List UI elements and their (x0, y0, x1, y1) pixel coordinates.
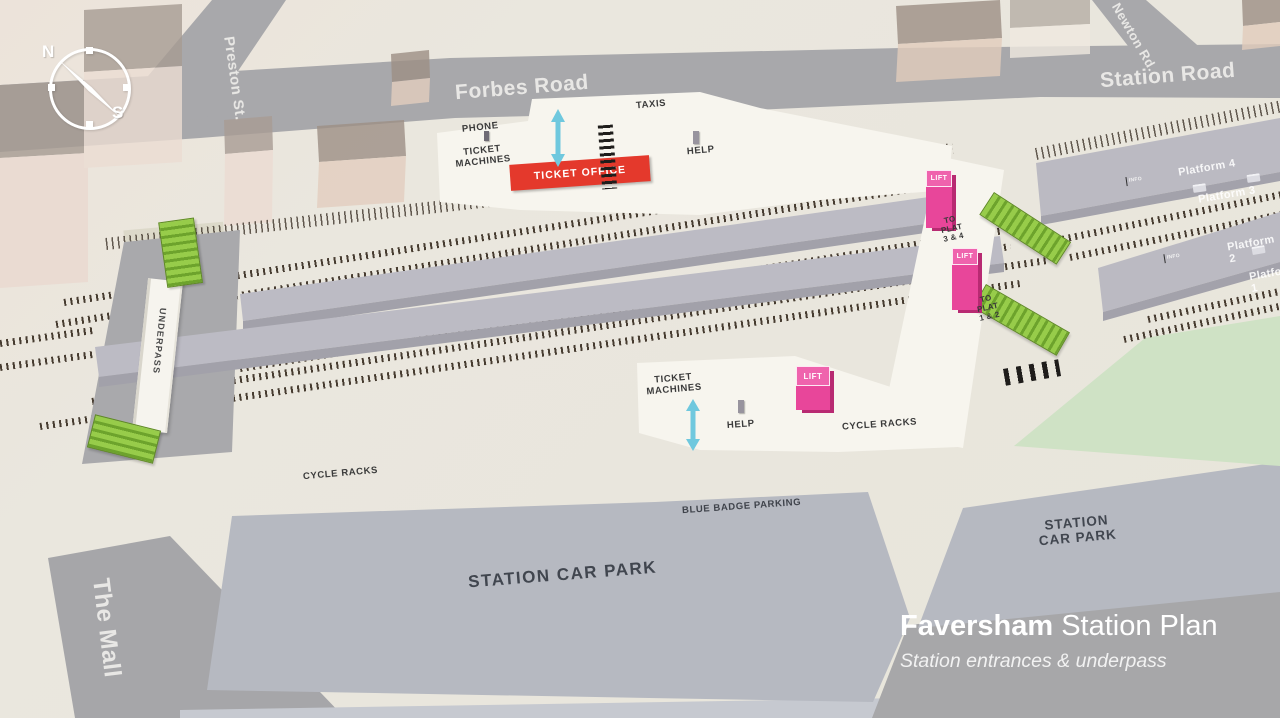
compass-south-label: S (112, 103, 123, 123)
ticket-machines-north-label: TICKET MACHINES (454, 143, 511, 171)
phone-label: PHONE (462, 121, 500, 136)
lift-tower: LIFT (952, 248, 978, 310)
ticket-machines-south-label: TICKET MACHINES (645, 372, 702, 399)
railway-track (0, 327, 96, 347)
underpass-label: UNDERPASS (145, 307, 168, 431)
road-label-newton: Newton Rd. (1109, 0, 1160, 74)
road-label-forbes: Forbes Road (454, 71, 589, 105)
info-sign-icon: INFO (1125, 175, 1142, 186)
page-title: Faversham Station Plan (900, 611, 1218, 643)
platform-1-label: Platform 1 (1248, 263, 1280, 295)
entrance-arrow-icon (550, 108, 566, 168)
platform-4-label: Platform 4 (1177, 157, 1236, 178)
lift-tower: LIFT (796, 366, 830, 410)
cycle-racks-south-label: CYCLE RACKS (842, 417, 918, 433)
railway-track (0, 351, 94, 371)
compass-tick (86, 47, 93, 54)
help-point-icon (693, 131, 699, 144)
road-label-station: Station Road (1099, 59, 1236, 94)
page-subtitle: Station entrances & underpass (900, 650, 1218, 673)
compass-tick (48, 84, 55, 91)
compass-north-label: N (42, 42, 54, 62)
right-car-park-label: STATION CAR PARK (1037, 512, 1118, 549)
help-north-label: HELP (687, 145, 716, 158)
entrance-arrow-icon (685, 398, 701, 452)
cycle-rack-icon (598, 125, 617, 190)
road-label-the-mall: The Mall (86, 577, 126, 680)
bench-icon (1247, 173, 1261, 183)
title-bold: Faversham (900, 610, 1053, 642)
to-platforms-3-4-label: TO PLAT 3 & 4 (938, 213, 965, 244)
bench-icon (1193, 183, 1207, 193)
cycle-rack-icon (1003, 359, 1061, 385)
main-car-park-label: STATION CAR PARK (468, 558, 658, 593)
compass-tick (123, 84, 130, 91)
lift-label: LIFT (796, 366, 830, 386)
lift-label: LIFT (926, 170, 952, 187)
road-label-preston: Preston St. (220, 35, 249, 121)
info-sign-icon: INFO (1163, 252, 1180, 263)
phone-post-icon (484, 131, 489, 141)
title-rest: Station Plan (1061, 610, 1217, 642)
lift-label: LIFT (952, 248, 978, 265)
help-point-icon (738, 400, 744, 413)
compass-tick (86, 121, 93, 128)
taxis-label: TAXIS (636, 99, 667, 113)
help-south-label: HELP (727, 419, 755, 432)
map-title: Faversham Station Plan Station entrances… (900, 611, 1218, 673)
station-map: Forbes Road Station Road Preston St. New… (0, 0, 1280, 718)
railway-track (239, 243, 1010, 372)
railway-track (239, 227, 1003, 355)
blue-badge-parking-label: BLUE BADGE PARKING (682, 498, 802, 517)
cycle-racks-west-label: CYCLE RACKS (303, 466, 379, 483)
